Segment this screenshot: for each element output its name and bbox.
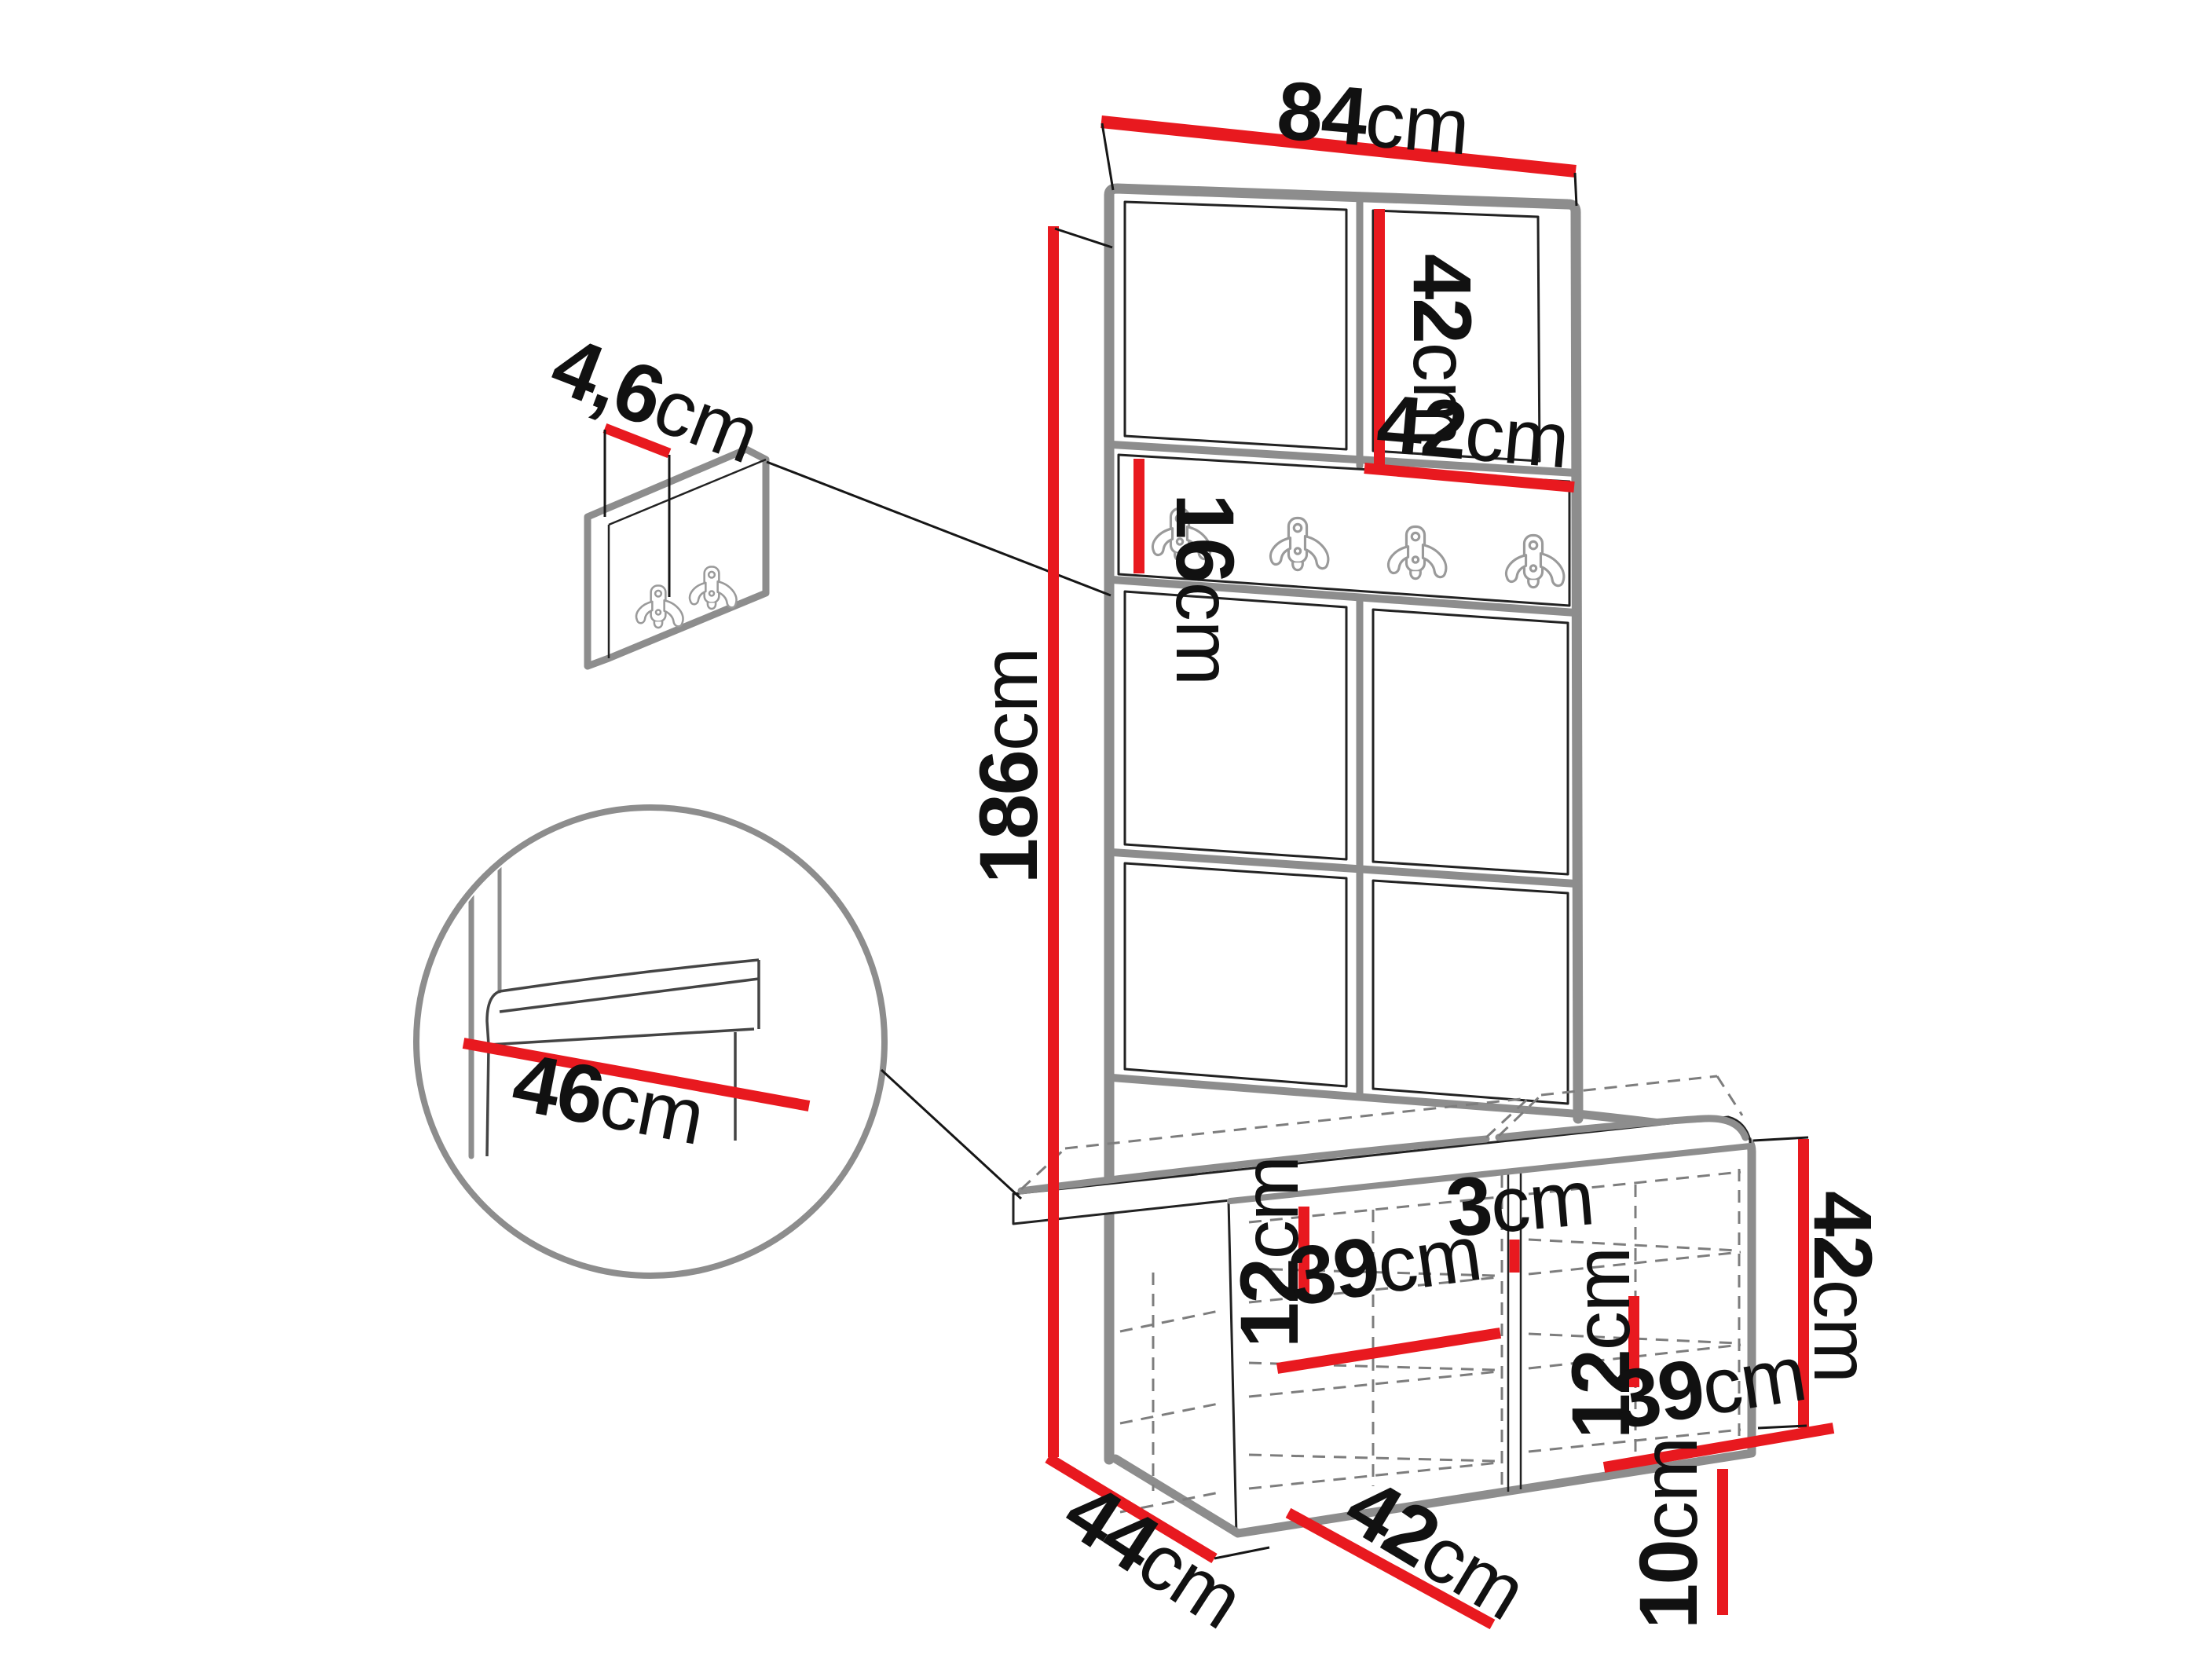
dim-label-width-top: 84cm bbox=[1273, 64, 1472, 173]
leader-line-wall-panel bbox=[767, 462, 1111, 595]
dim-label-rail-height: 16cm bbox=[1159, 493, 1251, 685]
wall-panel-detail bbox=[588, 449, 1111, 666]
wall-panel-outline bbox=[588, 449, 766, 666]
dim-label-panel-col-width: 42cm bbox=[1373, 378, 1572, 486]
leader-line-detail-circle bbox=[881, 1070, 1021, 1199]
dimension-diagram: 84cm 42cm 42cm 16cm 186cm 4,6cm 46cm 3cm… bbox=[0, 0, 2212, 1659]
panel-grid-r2c1 bbox=[1125, 863, 1346, 1086]
coat-hook-icon bbox=[690, 567, 736, 610]
panel-grid-r1c2 bbox=[1373, 610, 1568, 874]
detail-cushion-front-edge bbox=[500, 979, 759, 1012]
diagram-canvas: 84cm 42cm 42cm 16cm 186cm 4,6cm 46cm 3cm… bbox=[0, 0, 2212, 1659]
dim-label-plinth-height: 10cm bbox=[1623, 1437, 1715, 1629]
dim-label-seat-depth: 46cm bbox=[506, 1035, 712, 1162]
dim-label-panel-thickness: 4,6cm bbox=[540, 319, 771, 481]
detail-cushion-corner bbox=[487, 991, 500, 1045]
detail-circle-outline bbox=[416, 808, 884, 1276]
upholstered-panel-top-left bbox=[1125, 202, 1346, 449]
detail-circle bbox=[416, 808, 1021, 1276]
detail-cushion-top-edge bbox=[500, 960, 759, 991]
panel-grid-r2c2 bbox=[1373, 881, 1568, 1104]
dim-label-bench-height: 42cm bbox=[1796, 1191, 1888, 1382]
dim-label-total-height: 186cm bbox=[963, 648, 1055, 884]
coat-hook-icon bbox=[636, 586, 683, 628]
dim-label-depth: 44cm bbox=[1049, 1465, 1259, 1646]
